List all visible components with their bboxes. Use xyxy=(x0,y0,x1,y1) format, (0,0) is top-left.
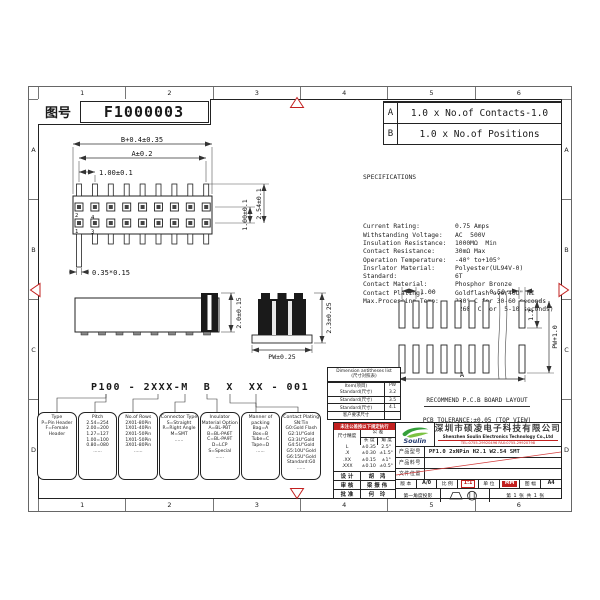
soulin-swoosh-icon xyxy=(400,425,430,438)
pw-row-item: Standard(尺寸) xyxy=(328,389,385,396)
part-number-box-title: Insulator Material Option xyxy=(201,415,239,426)
pw-row-item: Standard(尺寸) xyxy=(328,404,385,411)
part-number-box: Insulator Material Option A=BL-PBTB=BL-P… xyxy=(200,412,240,480)
projection-symbols xyxy=(441,489,490,502)
title-block-tolerances: 未注公差按以下规定执行 尺寸精度 公 差 长 度 角 度 L ±0.35 2.5… xyxy=(334,423,396,498)
part-number-option: ...... xyxy=(160,438,198,444)
scale-label: 比 例 xyxy=(437,480,458,489)
version-value: A/0 xyxy=(417,480,438,489)
top-view-drawing: B+0.4±0.35 A±0.2 1.00±0.1 0.35*0.15 1.00… xyxy=(69,134,304,284)
signature-row: 审 核 梁振伟 xyxy=(334,480,395,489)
product-info-row: 文件位置 xyxy=(396,469,561,480)
projection-label: 第一角度投影 xyxy=(396,489,441,502)
dim-pcb-row-span: PW+1.0 xyxy=(551,325,559,349)
spec-row: Withstanding Voltage:AC 500V xyxy=(363,232,561,240)
signature-row: 批 准 何 玲 xyxy=(334,489,395,498)
part-number-box: Contact Plating SN:TinG0:Gold FlashG2:1U… xyxy=(281,412,321,480)
tolerance-rows: L ±0.35 2.5° .X ±0.30 ±1.5° .XX ±0.15 ±1… xyxy=(334,445,395,471)
part-number-box-lines: A=BL-PBTB=BL-PA6TC=BL-PA9TD=LCPS=Special… xyxy=(201,426,239,460)
unit-value: MM xyxy=(502,481,517,488)
spec-row: Contact Resistance:30mΩ Max xyxy=(363,248,561,256)
spec-value: -40° to+105° xyxy=(455,257,501,264)
part-number-box: Connector Type S=StraightR=Right AngleM=… xyxy=(159,412,199,480)
dim-overall: 2.54±0.1 xyxy=(255,188,263,219)
dim-body-width: B+0.4±0.35 xyxy=(121,136,163,144)
pw-footer-label: 客户要求尺寸 xyxy=(328,412,385,419)
tol-corner: 尺寸精度 xyxy=(334,430,360,443)
spec-row: Insrlator Material:Polyester(UL94V-0) xyxy=(363,265,561,273)
flange xyxy=(252,335,312,343)
pw-dimension-table: Dimension antitheses list (尺寸对照表) Item(项… xyxy=(327,367,401,420)
product-info-rows: 产品型号 PF1.0 2xNPin H2.1 W2.54 SMT 产品料号 文件… xyxy=(396,447,561,480)
center-mark-top xyxy=(289,96,305,109)
part-number-box-lines: S=StraightR=Right AngleM=SMT...... xyxy=(160,421,198,444)
pin-number-1: 1 xyxy=(75,229,78,235)
grid-col-label: 1 xyxy=(38,87,125,99)
tolerance-table: 尺寸精度 公 差 长 度 角 度 xyxy=(334,430,395,444)
company-logo: Soulin xyxy=(396,423,435,446)
product-info-label: 产品型号 xyxy=(396,447,425,457)
pw-row-value: 3.2 xyxy=(385,389,400,396)
pcb-layout-drawing: 1.00 0.50 1.2 PW+1.0 A xyxy=(393,281,561,385)
first-angle-projection-icon xyxy=(448,489,482,502)
part-number-option: F=Female Header xyxy=(38,426,76,437)
spec-label: Operation Temperature: xyxy=(363,257,455,265)
signature-role: 审 核 xyxy=(334,481,361,489)
pw-table-title-cn: (尺寸对照表) xyxy=(328,374,400,379)
part-number-box-lines: 2X01-80Pin1X01-40Pin2X01-50Pin1X01-50Pin… xyxy=(119,421,157,455)
pcb-captions: RECOMMEND P.C.B BOARD LAYOUT PCB TOLERAN… xyxy=(393,387,561,426)
unit-label: 单 位 xyxy=(479,480,500,489)
pw-table-rows: Standard(尺寸) 3.2 Standard(尺寸) 3.5 Standa… xyxy=(328,389,400,411)
part-number-option: G2:1U"Gold xyxy=(282,432,320,438)
part-number-box: Pitch 2.54=2542.00=2001.27=1271.00=1000.… xyxy=(78,412,118,480)
revision-row: A 1.0 x No.of Contacts-1.0 xyxy=(384,102,561,123)
spec-label: Current Rating: xyxy=(363,223,455,231)
grid-col-label: 3 xyxy=(213,499,300,511)
dim-pcb-pad-width: 0.50 xyxy=(489,288,505,296)
company-name-en: Shenzhen Soulin Electronics Technology C… xyxy=(435,434,561,439)
part-number-boxes: Type P=Pin HeaderF=Female Header Pitch 2… xyxy=(37,412,321,480)
product-info-row: 产品料号 xyxy=(396,458,561,469)
signature-name: 梁振伟 xyxy=(361,481,395,489)
center-mark-left xyxy=(29,282,42,298)
title-block-main: Soulin 深圳市硕凌电子科技有限公司 Shenzhen Soulin Ele… xyxy=(396,423,561,498)
pw-table-row: Standard(尺寸) 3.5 xyxy=(328,396,400,404)
company-name-cn: 深圳市硕凌电子科技有限公司 xyxy=(435,425,561,435)
grid-col-label: 1 xyxy=(38,499,125,511)
pw-table-row: Standard(尺寸) 4.1 xyxy=(328,403,400,411)
spec-value: 0.75 Amps xyxy=(455,223,489,230)
pw-row-item: Standard(尺寸) xyxy=(328,397,385,404)
spec-label: Insrlator Material: xyxy=(363,265,455,273)
pin-number-3: 3 xyxy=(91,230,94,236)
spec-row: Insulation Resistance:1000MΩ Min xyxy=(363,240,561,248)
pw-col-pw: PW xyxy=(385,383,400,390)
part-number-box: Type P=Pin HeaderF=Female Header xyxy=(37,412,77,480)
part-number-box: Manner of packing Bag=ABox=BTube=CTape=D… xyxy=(241,412,281,480)
contact-block-side xyxy=(201,293,218,332)
grid-row-label: C xyxy=(29,299,38,399)
tol-angle-head: 角 度 xyxy=(377,437,394,445)
revision-note-table: A 1.0 x No.of Contacts-1.0 B 1.0 x No.of… xyxy=(383,101,562,145)
grid-row-label: A xyxy=(29,99,38,199)
signature-name: 胡 鸿 xyxy=(361,472,395,480)
spec-row: Current Rating:0.75 Amps xyxy=(363,223,561,231)
part-number-code: P100 - 2XXX-M B X XX - 001 xyxy=(91,382,309,393)
tol-length-head: 长 度 xyxy=(360,437,377,445)
company-info: 深圳市硕凌电子科技有限公司 Shenzhen Soulin Electronic… xyxy=(435,423,561,446)
pw-table-title: Dimension antitheses list (尺寸对照表) xyxy=(328,368,400,382)
pw-row-value: 4.1 xyxy=(385,404,400,411)
revision-key: A xyxy=(384,103,398,123)
revision-key: B xyxy=(384,124,398,144)
revision-text: 1.0 x No.of Positions xyxy=(398,124,561,144)
pw-footer-value xyxy=(385,412,400,419)
dim-pcb-pad-length: 1.2 xyxy=(527,309,535,321)
product-info-label: 产品料号 xyxy=(396,458,425,468)
spec-label: Contact Resistance: xyxy=(363,248,455,256)
part-number-connector-lines xyxy=(37,394,337,412)
dim-pitch: 1.00±0.1 xyxy=(99,169,133,177)
signature-role: 设 计 xyxy=(334,472,361,480)
sheet-count: 第 1 张 共 1 张 xyxy=(490,489,561,502)
product-info-value: PF1.0 2xNPin H2.1 W2.54 SMT xyxy=(425,447,561,457)
unit-value-cell: MM xyxy=(500,480,521,489)
part-number-option: ...... xyxy=(119,449,157,455)
spec-value: Polyester(UL94V-0) xyxy=(455,265,523,272)
side-view-drawing: 2.0±0.15 xyxy=(71,290,251,352)
dim-end-width: PW±0.25 xyxy=(268,353,295,361)
grid-col-label: 3 xyxy=(213,87,300,99)
company-header: Soulin 深圳市硕凌电子科技有限公司 Shenzhen Soulin Ele… xyxy=(396,423,561,447)
part-number-box: No.of Rows 2X01-80Pin1X01-40Pin2X01-50Pi… xyxy=(118,412,158,480)
product-info-value xyxy=(425,458,561,468)
version-label: 版 本 xyxy=(396,480,417,489)
part-number-box-title: Contact Plating xyxy=(282,415,320,421)
dim-pin-size: 0.35*0.15 xyxy=(92,269,130,277)
connector-body-side xyxy=(75,298,219,332)
product-info-row: 产品型号 PF1.0 2xNPin H2.1 W2.54 SMT xyxy=(396,447,561,458)
part-number-option: ...... xyxy=(201,455,239,461)
grid-col-label: 5 xyxy=(387,87,474,99)
company-contact: TEL:0755-29920496 FAX:0755-29920798 xyxy=(438,440,558,446)
title-block: 未注公差按以下规定执行 尺寸精度 公 差 长 度 角 度 L ±0.35 2.5… xyxy=(333,422,562,499)
engineering-drawing-page: { "sheet": { "drawing_no_label": "图号", "… xyxy=(0,0,600,600)
part-number-box-title: Manner of packing xyxy=(242,415,280,426)
part-number-option: ...... xyxy=(242,449,280,455)
version-row: 版 本 A/0 比 例 1:1 单 位 MM 图 幅 A4 xyxy=(396,480,561,490)
pcb-pads-bottom xyxy=(399,345,525,373)
drawing-number-value: F1000003 xyxy=(80,101,209,123)
center-mark-right xyxy=(557,282,570,298)
product-info-value xyxy=(425,469,561,479)
grid-row-label: D xyxy=(562,399,571,499)
spec-label: Insulation Resistance: xyxy=(363,240,455,248)
specifications-title: SPECIFICATIONS xyxy=(363,174,561,182)
grid-col-label: 4 xyxy=(300,499,387,511)
drawing-sheet: 123456 123456 ABCD ABCD 图号 F1000003 A 1.… xyxy=(28,86,572,512)
pw-table-header: Item(项目) PW xyxy=(328,382,400,390)
part-number-box-title: Connector Type xyxy=(160,415,198,421)
grid-col-label: 2 xyxy=(125,499,212,511)
signature-name: 何 玲 xyxy=(361,490,395,498)
tolerance-note: 未注公差按以下规定执行 xyxy=(334,423,395,430)
spec-value: AC 500V xyxy=(455,232,485,239)
pin-number-2: 2 xyxy=(75,213,78,219)
grid-col-label: 6 xyxy=(475,87,562,99)
grid-row-label: A xyxy=(562,99,571,199)
spec-value: 1000MΩ Min xyxy=(455,240,497,247)
grid-row-labels-right: ABCD xyxy=(562,99,571,499)
grid-row-label: C xyxy=(562,299,571,399)
product-info-label: 文件位置 xyxy=(396,469,425,479)
signature-row: 设 计 胡 鸿 xyxy=(334,471,395,480)
dim-row-pitch: 1.00±0.1 xyxy=(241,199,249,230)
part-number-option: ...... xyxy=(282,466,320,472)
pcb-caption-1: RECOMMEND P.C.B BOARD LAYOUT xyxy=(424,397,529,407)
pw-table-row: Standard(尺寸) 3.2 xyxy=(328,389,400,396)
dim-pin-span: A±0.2 xyxy=(131,150,152,158)
revision-text: 1.0 x No.of Contacts-1.0 xyxy=(398,103,561,123)
size-label: 图 幅 xyxy=(520,480,541,489)
pw-col-item: Item(项目) xyxy=(328,383,385,390)
part-number-box-lines: P=Pin HeaderF=Female Header xyxy=(38,421,76,438)
dim-pcb-total: A xyxy=(460,371,465,379)
spec-label: Withstanding Voltage: xyxy=(363,232,455,240)
top-pins xyxy=(77,184,209,196)
dim-pcb-pitch: 1.00 xyxy=(420,288,436,296)
center-mark-bottom xyxy=(289,487,305,500)
part-number-option: G5:10U"Gold xyxy=(282,449,320,455)
grid-col-label: 4 xyxy=(300,87,387,99)
part-number-option: ...... xyxy=(79,449,117,455)
part-number-box-lines: SN:TinG0:Gold FlashG2:1U"GoldG3:3U"GoldG… xyxy=(282,421,320,472)
signature-role: 批 准 xyxy=(334,490,361,498)
part-number-box-lines: 2.54=2542.00=2001.27=1271.00=1000.80=080… xyxy=(79,421,117,455)
size-value: A4 xyxy=(541,480,561,489)
spec-value: 30mΩ Max xyxy=(455,248,485,255)
spec-row: Operation Temperature:-40° to+105° xyxy=(363,257,561,265)
drawing-number-box: 图号 F1000003 xyxy=(38,99,211,125)
projection-row: 第一角度投影 第 1 张 共 1 张 xyxy=(396,489,561,502)
drawing-number-label: 图号 xyxy=(38,99,78,124)
bottom-pins xyxy=(77,234,209,267)
dim-end-height: 2.3±0.25 xyxy=(325,302,333,333)
scale-value: 1:1 xyxy=(461,480,476,489)
tol-span: 公 差 xyxy=(360,430,395,437)
part-number-box-lines: Bag=ABox=BTube=CTape=D...... xyxy=(242,426,280,455)
dim-side-height: 2.0±0.15 xyxy=(235,297,243,328)
spec-value: 6T xyxy=(455,273,463,280)
signature-rows: 设 计 胡 鸿 审 核 梁振伟 批 准 何 玲 xyxy=(334,471,395,498)
grid-col-label: 2 xyxy=(125,87,212,99)
connector-body-end xyxy=(258,293,306,335)
pcb-pads-top xyxy=(399,301,525,328)
end-view-drawing: PW±0.25 2.3±0.25 xyxy=(246,283,338,365)
logo-text: Soulin xyxy=(403,438,426,444)
break-lines xyxy=(498,293,507,379)
revision-row: B 1.0 x No.of Positions xyxy=(384,123,561,144)
pw-row-value: 3.5 xyxy=(385,397,400,404)
pw-table-footer: 客户要求尺寸 xyxy=(328,411,400,419)
scale-value-cell: 1:1 xyxy=(458,480,479,489)
